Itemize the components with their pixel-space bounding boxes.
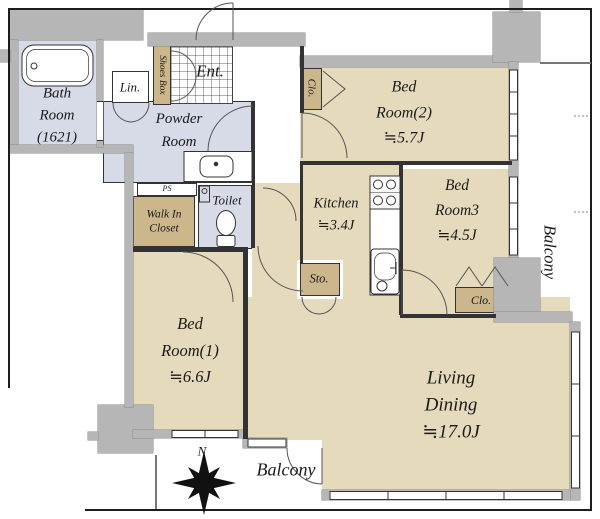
- walk-in-closet-name: Walk In Closet: [146, 208, 181, 237]
- toilet-label: Toilet: [212, 190, 241, 210]
- compass-north-letter: N: [198, 441, 207, 461]
- wall-living-bottom: [322, 490, 570, 500]
- frame-bottom: [85, 509, 592, 511]
- frame-right: [590, 8, 592, 511]
- bedroom2-size: ≒5.7J: [384, 126, 425, 152]
- bedroom1-name: Bed Room(1): [161, 311, 219, 364]
- shoes-box-name: Shoes Box: [155, 55, 169, 94]
- bedroom2-label: Bed Room(2)≒5.7J: [376, 75, 432, 152]
- bedroom3-label: Bed Room3≒4.5J: [435, 174, 479, 248]
- pipe-space-label: PS: [163, 183, 172, 195]
- wall-entrance-top: [148, 33, 305, 46]
- wall-bedrooms-right: [509, 62, 518, 258]
- wall-bedroom1-bottom: [133, 430, 243, 438]
- bedroom1-size: ≒6.6J: [169, 364, 211, 391]
- bedroom3-name: Bed Room3: [435, 174, 479, 224]
- wall-living-top-right: [494, 312, 572, 322]
- wall-left-lower: [125, 153, 133, 407]
- bedroom3-closet-label: Clo.: [471, 291, 491, 309]
- wall-bedroom3-bottom: [400, 314, 496, 318]
- wall-left-bath: [10, 40, 18, 153]
- entrance-name: Ent.: [196, 58, 224, 84]
- wall-tab-bottom-left: [88, 432, 98, 440]
- balcony-right-name: Balcony: [537, 225, 562, 279]
- living-dining-label: Living Dining≒17.0J: [422, 366, 480, 447]
- wall-kitchen-left: [300, 165, 303, 263]
- compass-north-label: N: [198, 441, 207, 461]
- pipe-space-name: PS: [163, 183, 172, 195]
- powder-room-name: Powder Room: [156, 108, 203, 155]
- storage-name: Sto.: [309, 270, 328, 289]
- wall-kitchen-bedroom3: [399, 165, 403, 315]
- balcony-bottom-left-line: [155, 455, 157, 509]
- bedroom3-size: ≒4.5J: [437, 223, 476, 248]
- bedroom2-closet-name: Clo.: [303, 79, 320, 98]
- storage-label: Sto.: [309, 270, 328, 289]
- balcony-dividers: [574, 116, 590, 212]
- wall-bedroom2-top: [300, 56, 515, 67]
- bathroom-label: Bath Room (1621): [37, 83, 77, 148]
- kitchen-label: Kitchen≒3.4J: [313, 193, 358, 237]
- bedroom3-closet-name: Clo.: [471, 291, 491, 309]
- entrance-label: Ent.: [196, 58, 224, 84]
- floor-plan: Bath Room (1621) Lin. Shoes Box Ent. Pow…: [0, 0, 600, 519]
- wall-powder-right: [252, 101, 255, 248]
- frame-top: [8, 8, 592, 10]
- hallway-area: [252, 183, 305, 300]
- bathroom-name: Bath Room (1621): [37, 83, 77, 148]
- wall-block-mid-right: [494, 258, 540, 314]
- wall-block-top-right: [493, 12, 540, 62]
- kitchen-name: Kitchen: [313, 193, 358, 215]
- wall-living-right: [570, 322, 580, 500]
- powder-room-label: Powder Room: [156, 108, 203, 155]
- wall-block-bottom-left: [98, 405, 153, 453]
- toilet-name: Toilet: [212, 190, 241, 210]
- bedroom2-name: Bed Room(2): [376, 75, 432, 126]
- wall-top-left: [10, 10, 143, 40]
- bath-sliding-door: [97, 101, 103, 141]
- wall-bedroom1-right: [243, 247, 248, 439]
- balcony-bottom-name: Balcony: [257, 457, 316, 484]
- balcony-right-label: Balcony: [537, 225, 562, 279]
- living-dining-area-lower: [322, 440, 570, 490]
- bedroom2-closet-label: Clo.: [303, 79, 320, 98]
- living-dining-size: ≒17.0J: [422, 419, 480, 446]
- linen-label: Lin.: [120, 77, 141, 97]
- wall-bedroom2-bottom: [300, 161, 512, 165]
- wall-bedroom1-top: [133, 247, 245, 252]
- wall-balcony-step: [243, 438, 287, 448]
- living-dining-name: Living Dining: [425, 366, 478, 420]
- shoes-box-label: Shoes Box: [155, 55, 169, 94]
- balcony-right-top-line: [540, 62, 591, 64]
- walk-in-closet-label: Walk In Closet: [146, 208, 181, 237]
- kitchen-size: ≒3.4J: [318, 215, 355, 237]
- frame-left: [8, 8, 10, 388]
- balcony-bottom-label: Balcony: [257, 457, 316, 484]
- wall-stub-top-right: [510, 0, 522, 12]
- linen-name: Lin.: [120, 77, 141, 97]
- bedroom1-label: Bed Room(1)≒6.6J: [161, 311, 219, 391]
- compass-diagonal-star: [188, 467, 220, 499]
